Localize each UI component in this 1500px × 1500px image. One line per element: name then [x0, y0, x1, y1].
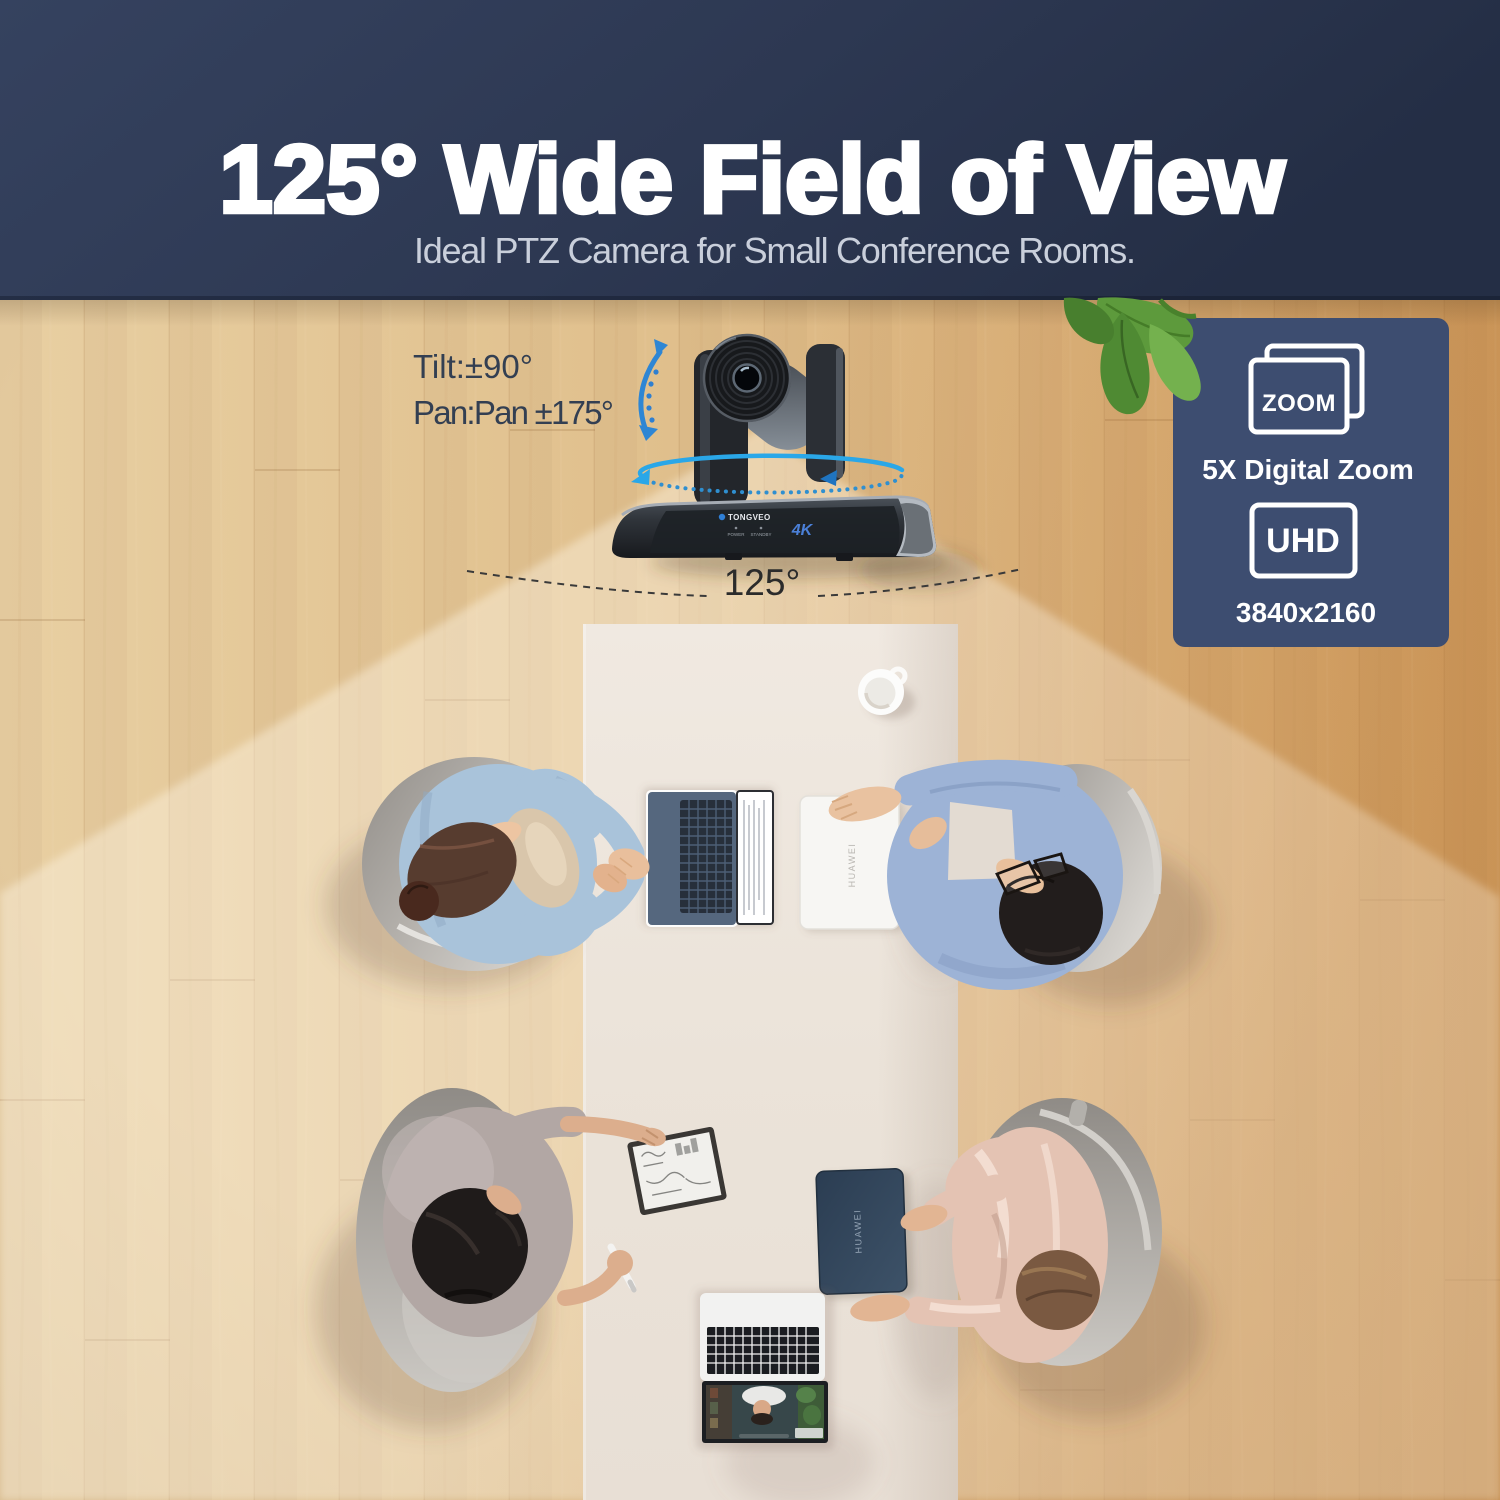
- svg-text:HUAWEI: HUAWEI: [847, 843, 857, 888]
- svg-text:HUAWEI: HUAWEI: [852, 1209, 864, 1254]
- svg-text:4K: 4K: [791, 522, 814, 539]
- svg-text:Ideal PTZ Camera for Small Con: Ideal PTZ Camera for Small Conference Ro…: [414, 230, 1136, 271]
- svg-text:Tilt:±90°: Tilt:±90°: [413, 348, 533, 385]
- svg-text:ZOOM: ZOOM: [1262, 390, 1336, 417]
- svg-text:3840x2160: 3840x2160: [1236, 597, 1376, 628]
- svg-text:POWER: POWER: [727, 532, 745, 537]
- svg-text:STANDBY: STANDBY: [751, 532, 772, 537]
- svg-text:Pan:Pan ±175°: Pan:Pan ±175°: [413, 394, 614, 431]
- svg-text:TONGVEO: TONGVEO: [728, 513, 771, 522]
- svg-text:5X Digital Zoom: 5X Digital Zoom: [1202, 454, 1414, 485]
- svg-text:125° Wide Field of View: 125° Wide Field of View: [219, 126, 1285, 233]
- svg-text:125°: 125°: [724, 562, 801, 603]
- svg-text:UHD: UHD: [1266, 522, 1340, 560]
